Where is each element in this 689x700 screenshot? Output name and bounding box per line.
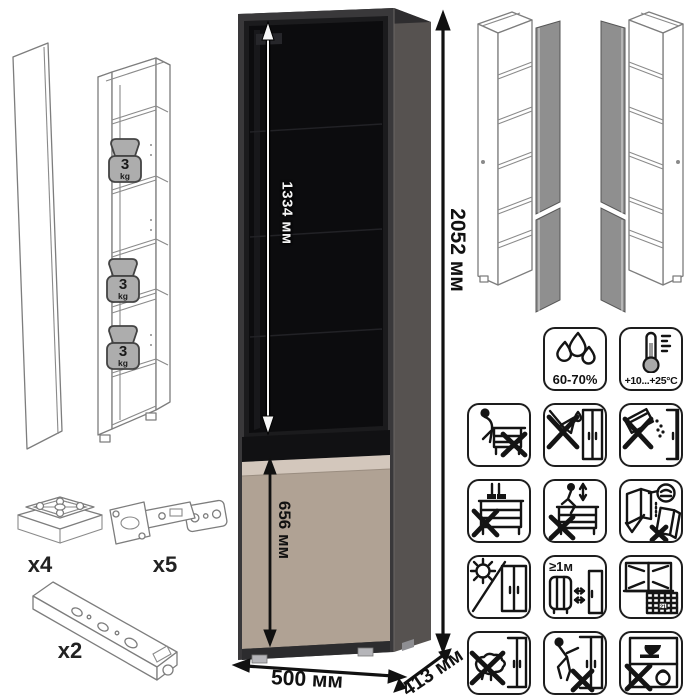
no-dragging-icon xyxy=(543,631,607,695)
foot-glide-drawing xyxy=(10,485,110,560)
ventilation-period-icon: 21 xyxy=(619,555,683,619)
humidity-range-label: 60-70% xyxy=(545,372,605,387)
no-standing-icon xyxy=(467,479,531,543)
furniture-spec-sheet: 3 kg 3 kg 3 kg xyxy=(0,0,689,700)
shelf-load-weight: 3 kg xyxy=(109,139,141,182)
door-adjustment-icon xyxy=(619,479,683,543)
svg-text:kg: kg xyxy=(118,291,128,301)
connecting-rail-count: x2 xyxy=(48,638,92,664)
connecting-rail-drawing xyxy=(25,570,195,685)
temperature-range-label: +10...+25°C xyxy=(621,375,681,387)
open-cabinet-wireframe: 3 kg 3 kg 3 kg xyxy=(8,35,233,460)
mirrored-cabinet-pair xyxy=(472,2,689,332)
no-scraping-icon xyxy=(543,403,607,467)
no-direct-sunlight-icon xyxy=(467,555,531,619)
hinge-drawing xyxy=(100,478,235,563)
care-icon-grid: 60-70% +10...+25°C xyxy=(467,327,683,695)
calendar-day-label: 21 xyxy=(660,604,666,610)
temperature-thermometer-icon: +10...+25°C xyxy=(619,327,683,391)
glass-door-height-label: 1334 мм xyxy=(279,181,296,244)
humidity-drops-icon: 60-70% xyxy=(543,327,607,391)
bottom-door-height-label: 656 мм xyxy=(274,501,294,559)
no-wet-cleaning-icon xyxy=(467,631,531,695)
shelf-load-weight: 3 kg xyxy=(107,259,139,302)
weight-unit: kg xyxy=(120,171,130,181)
no-jumping-icon xyxy=(543,479,607,543)
min-distance-label: ≥1м xyxy=(549,559,573,574)
total-height-label: 2052 мм xyxy=(445,208,469,292)
total-height-arrow xyxy=(436,11,450,653)
svg-text:kg: kg xyxy=(118,358,128,368)
shelf-load-weight: 3 kg xyxy=(107,326,139,369)
no-abrasive-powder-icon xyxy=(619,403,683,467)
no-sitting-icon xyxy=(467,403,531,467)
cabinet-render xyxy=(230,0,480,700)
open-door-panel xyxy=(13,43,62,449)
grid-spacer xyxy=(467,327,531,391)
cabinet-side-panel xyxy=(394,8,431,652)
bottom-door xyxy=(242,469,390,649)
no-overloading-icon xyxy=(619,631,683,695)
foot xyxy=(358,648,373,656)
width-label: 500 мм xyxy=(270,666,343,694)
min-distance-from-heater-icon: ≥1м xyxy=(543,555,607,619)
foot xyxy=(252,655,267,663)
